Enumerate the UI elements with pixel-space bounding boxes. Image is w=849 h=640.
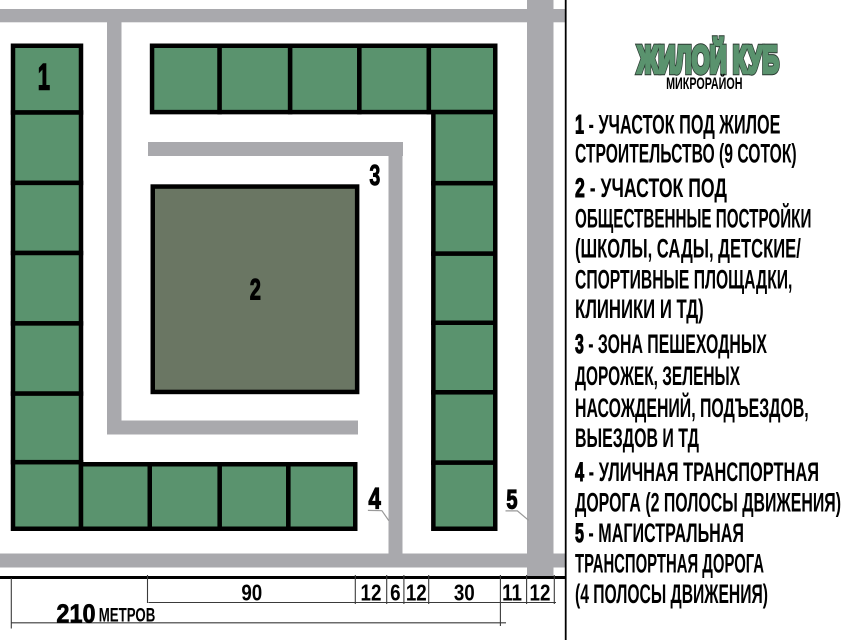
svg-text:30: 30 bbox=[454, 579, 475, 606]
svg-text:ОБЩЕСТВЕННЫЕ ПОСТРОЙКИ: ОБЩЕСТВЕННЫЕ ПОСТРОЙКИ bbox=[575, 202, 811, 233]
svg-text:СТРОИТЕЛЬСТВО (9 СОТОК): СТРОИТЕЛЬСТВО (9 СОТОК) bbox=[575, 139, 797, 169]
svg-text:2 - УЧАСТОК ПОД: 2 - УЧАСТОК ПОД bbox=[575, 173, 727, 203]
svg-text:6: 6 bbox=[390, 579, 401, 606]
svg-text:3: 3 bbox=[575, 329, 584, 359]
svg-text:11: 11 bbox=[502, 579, 522, 606]
svg-text:4 - УЛИЧНАЯ ТРАНСПОРТНАЯ: 4 - УЛИЧНАЯ ТРАНСПОРТНАЯ bbox=[575, 457, 819, 487]
svg-text:МЕТРОВ: МЕТРОВ bbox=[99, 604, 156, 626]
svg-text:КЛИНИКИ И ТД): КЛИНИКИ И ТД) bbox=[575, 294, 704, 324]
svg-text:ДОРОГА (2 ПОЛОСЫ ДВИЖЕНИЯ): ДОРОГА (2 ПОЛОСЫ ДВИЖЕНИЯ) bbox=[575, 487, 841, 517]
svg-text:90: 90 bbox=[241, 579, 262, 606]
svg-text:НАСОЖДЕНИЙ, ПОДЪЕЗДОВ,: НАСОЖДЕНИЙ, ПОДЪЕЗДОВ, bbox=[575, 392, 809, 423]
svg-text:3: 3 bbox=[369, 160, 380, 192]
svg-text:(ШКОЛЫ, САДЫ, ДЕТСКИЕ/: (ШКОЛЫ, САДЫ, ДЕТСКИЕ/ bbox=[575, 233, 801, 263]
svg-text:5 - МАГИСТРАЛЬНАЯ: 5 - МАГИСТРАЛЬНАЯ bbox=[575, 518, 744, 548]
svg-text:МИКРОРАЙОН: МИКРОРАЙОН bbox=[666, 73, 742, 93]
svg-text:ТРАНСПОРТНАЯ ДОРОГА: ТРАНСПОРТНАЯ ДОРОГА bbox=[575, 548, 764, 578]
svg-text:12: 12 bbox=[406, 579, 427, 606]
svg-text:3 - ЗОНА ПЕШЕХОДНЫХ: 3 - ЗОНА ПЕШЕХОДНЫХ bbox=[575, 329, 767, 359]
svg-text:2: 2 bbox=[575, 172, 585, 203]
svg-text:210: 210 bbox=[56, 601, 95, 629]
svg-text:4: 4 bbox=[575, 457, 585, 487]
svg-text:СПОРТИВНЫЕ ПЛОЩАДКИ,: СПОРТИВНЫЕ ПЛОЩАДКИ, bbox=[575, 264, 792, 294]
svg-text:12: 12 bbox=[530, 579, 551, 606]
svg-text:2: 2 bbox=[250, 274, 261, 307]
svg-text:1: 1 bbox=[575, 109, 584, 139]
svg-text:1: 1 bbox=[38, 58, 50, 98]
svg-text:ВЫЕЗДОВ И ТД: ВЫЕЗДОВ И ТД bbox=[575, 423, 699, 453]
svg-text:ДОРОЖЕК, ЗЕЛЕНЫХ: ДОРОЖЕК, ЗЕЛЕНЫХ bbox=[575, 361, 740, 391]
svg-text:5: 5 bbox=[575, 518, 584, 548]
svg-text:(4 ПОЛОСЫ ДВИЖЕНИЯ): (4 ПОЛОСЫ ДВИЖЕНИЯ) bbox=[575, 579, 768, 609]
svg-text:1 - УЧАСТОК ПОД ЖИЛОЕ: 1 - УЧАСТОК ПОД ЖИЛОЕ bbox=[575, 109, 781, 139]
svg-text:12: 12 bbox=[361, 579, 382, 606]
